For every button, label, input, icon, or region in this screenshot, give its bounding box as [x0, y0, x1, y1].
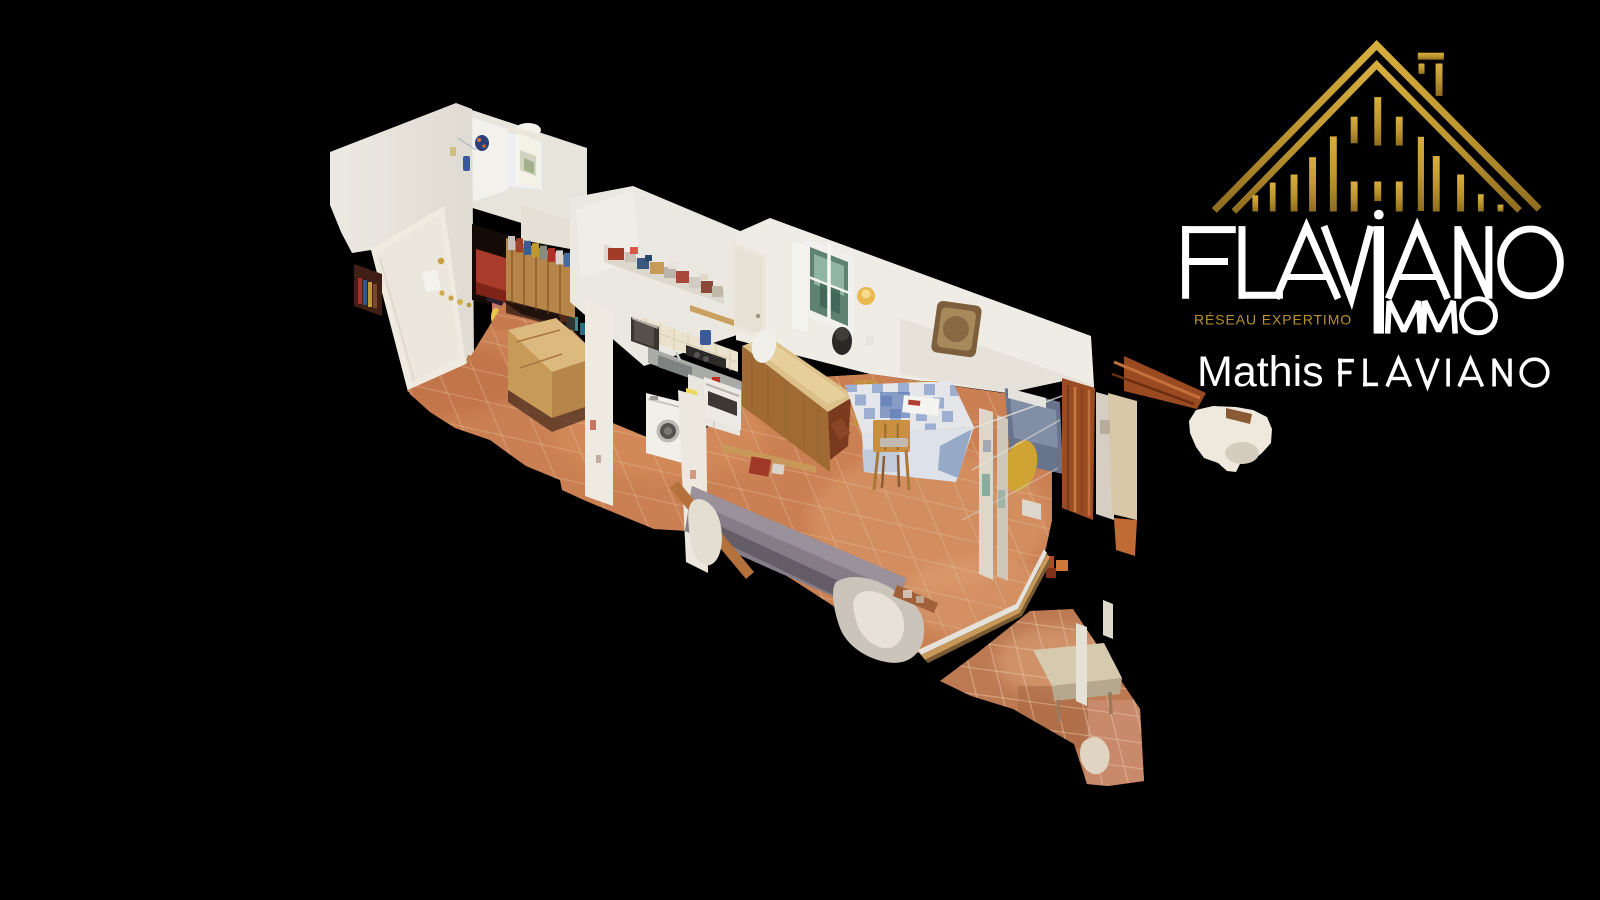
svg-text:Mathis: Mathis [1197, 348, 1324, 396]
svg-text:RÉSEAU EXPERTIMO: RÉSEAU EXPERTIMO [1194, 312, 1352, 328]
